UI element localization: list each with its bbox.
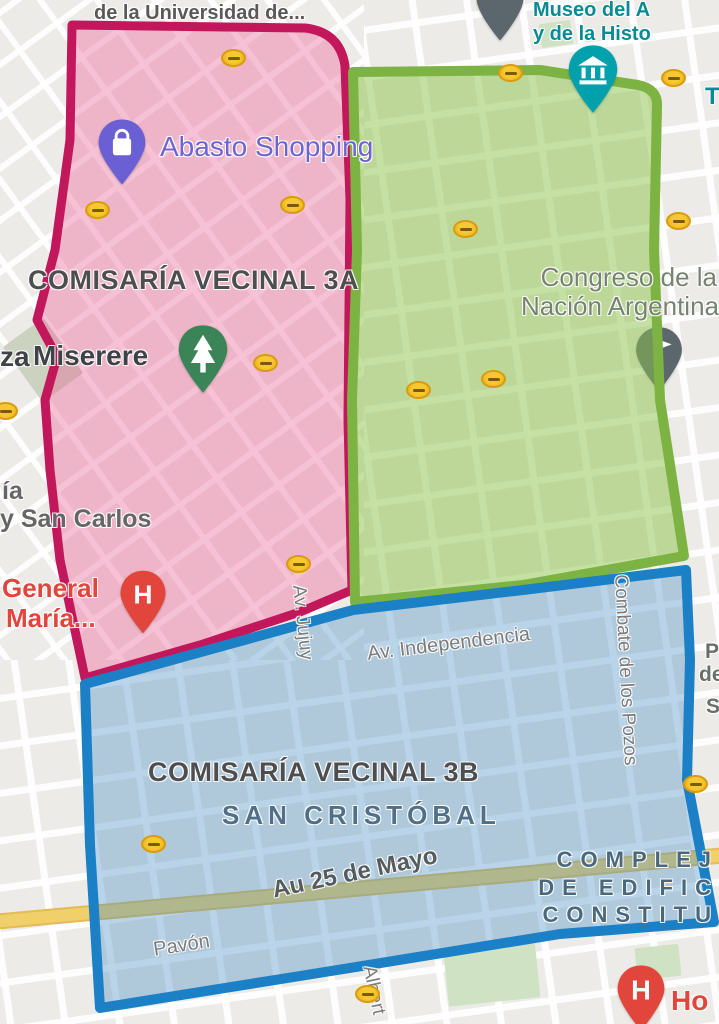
ia-fragment-label: ía [2, 478, 23, 505]
t-edge-label[interactable]: T [705, 84, 719, 110]
transit-station-icon[interactable] [481, 370, 506, 388]
edge-fragment-s: S [706, 696, 719, 719]
complejo-label-line3: CONSTITU [543, 903, 719, 927]
dark-pin-top[interactable] [474, 0, 526, 42]
map-canvas[interactable]: de la Universidad de... Museo del A y de… [0, 0, 719, 1024]
transit-station-icon[interactable] [498, 64, 523, 82]
park-pin-miserere[interactable] [176, 324, 230, 394]
museum-pin[interactable] [566, 44, 620, 114]
miserere-label[interactable]: Miserere [33, 341, 148, 371]
congreso-label-line2[interactable]: Nación Argentina [521, 292, 719, 320]
hospital-general-label-line1[interactable]: General [2, 574, 99, 602]
shopping-pin-abasto[interactable] [96, 118, 148, 186]
transit-station-icon[interactable] [453, 220, 478, 238]
zone-green[interactable] [352, 70, 684, 602]
complejo-label-line2: DE EDIFIC [538, 876, 719, 900]
transit-station-icon[interactable] [85, 201, 110, 219]
transit-station-icon[interactable] [666, 212, 691, 230]
hospital-pin-southeast[interactable]: H [615, 964, 667, 1024]
congreso-label-line1[interactable]: Congreso de la [541, 263, 717, 291]
comisaria-3a-title: COMISARÍA VECINAL 3A [28, 266, 359, 295]
svg-text:H: H [134, 579, 153, 609]
transit-station-icon[interactable] [280, 196, 305, 214]
transit-station-icon[interactable] [286, 555, 311, 573]
abasto-shopping-label[interactable]: Abasto Shopping [160, 132, 373, 162]
universidad-label[interactable]: de la Universidad de... [94, 3, 305, 25]
comisaria-3b-title: COMISARÍA VECINAL 3B [148, 758, 479, 787]
complejo-label-line1: COMPLEJ [557, 848, 719, 872]
san-carlos-label: y San Carlos [0, 506, 151, 533]
san-cristobal-label: SAN CRISTÓBAL [222, 801, 501, 829]
transit-station-icon[interactable] [683, 775, 708, 793]
hospital-ho-label[interactable]: Ho [671, 986, 708, 1016]
transit-station-icon[interactable] [406, 381, 431, 399]
museo-label-line1[interactable]: Museo del A [533, 0, 650, 22]
hospital-general-label-line2[interactable]: María... [6, 604, 96, 632]
edge-fragment-de: de [699, 664, 719, 687]
transit-station-icon[interactable] [221, 49, 246, 67]
transit-station-icon[interactable] [253, 354, 278, 372]
hospital-pin-west[interactable]: H [118, 566, 168, 638]
transit-station-icon[interactable] [141, 835, 166, 853]
edge-fragment-p: P [705, 641, 719, 664]
museo-label-line2[interactable]: y de la Histo [533, 24, 651, 46]
transit-station-icon[interactable] [661, 69, 686, 87]
svg-text:H: H [631, 974, 651, 1005]
transit-station-icon[interactable] [355, 985, 380, 1003]
plaza-fragment-label: za [0, 342, 30, 372]
